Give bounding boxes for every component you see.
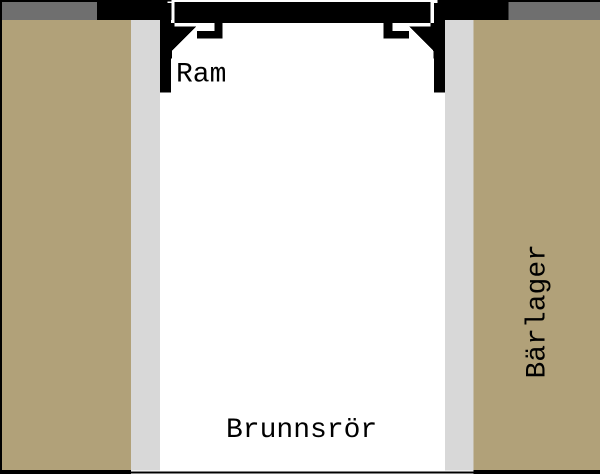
svg-text:Brunnsrör: Brunnsrör <box>226 415 377 446</box>
svg-text:Bärlager: Bärlager <box>523 244 554 378</box>
svg-text:Ram: Ram <box>176 60 226 91</box>
